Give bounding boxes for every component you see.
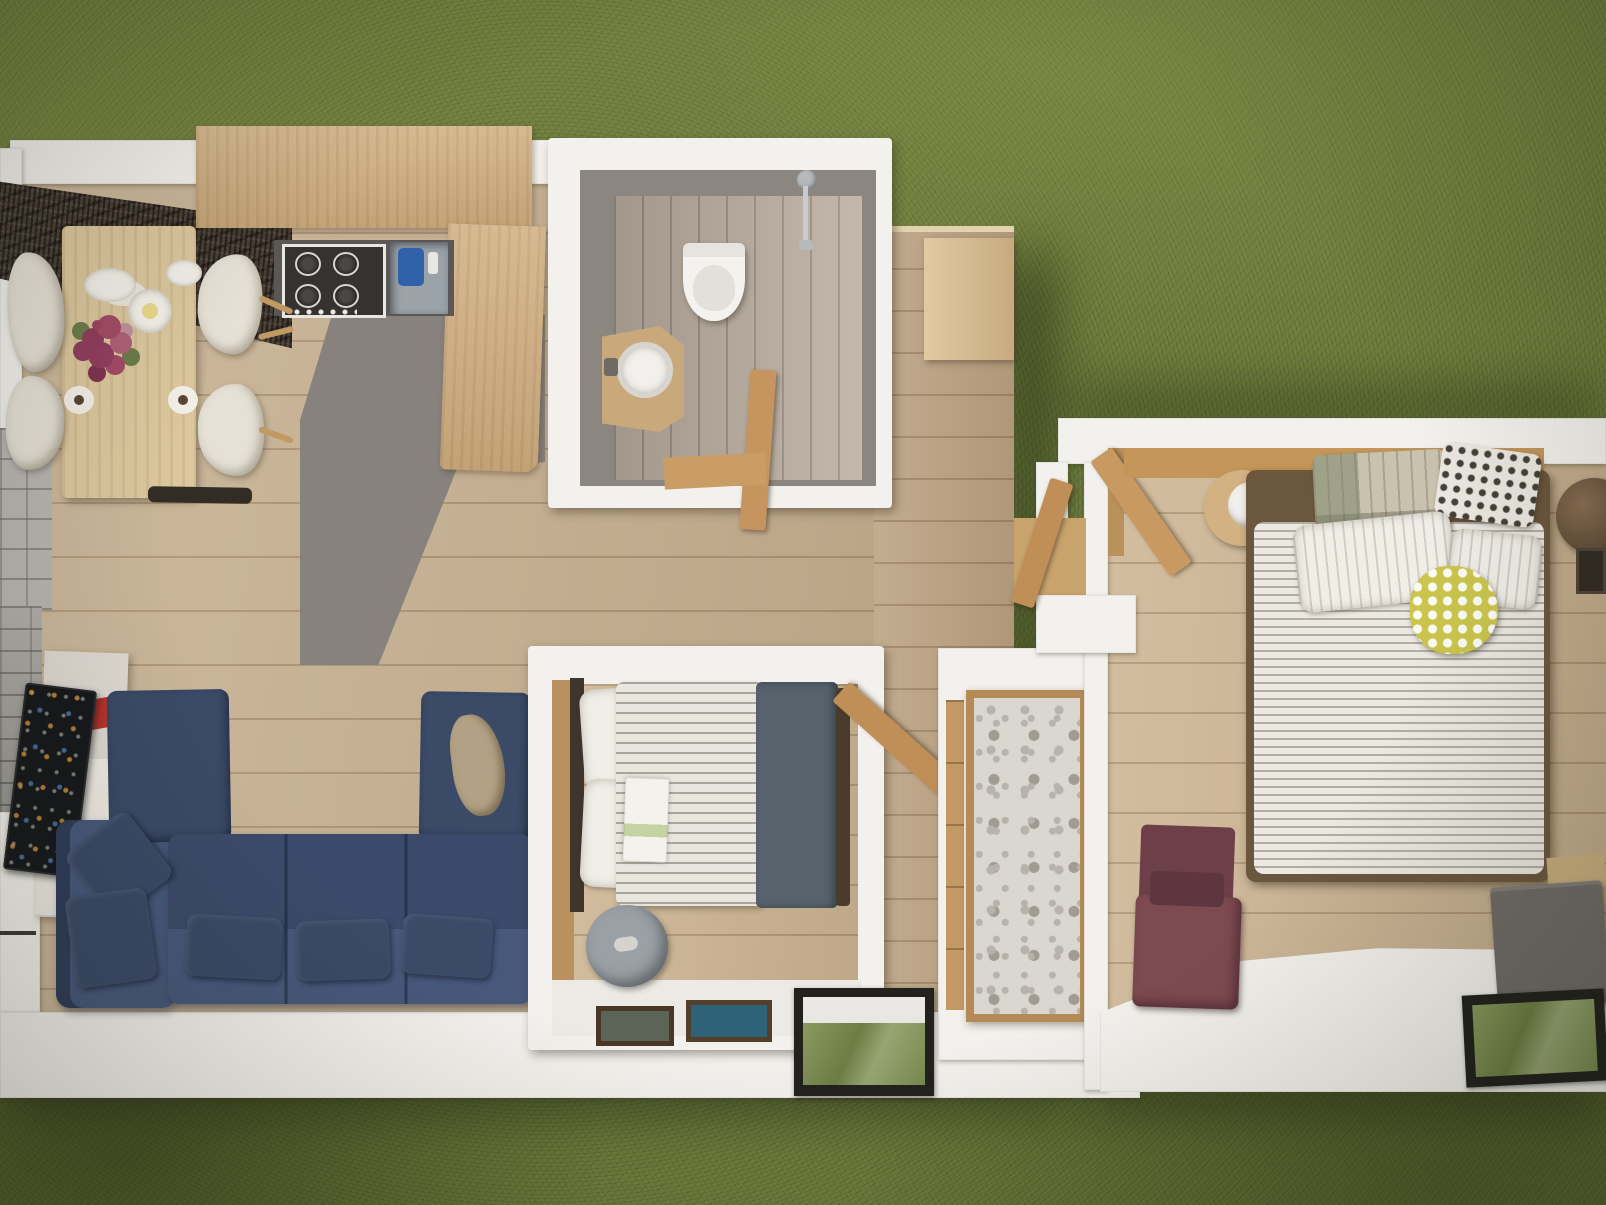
floor-plan-scene xyxy=(0,0,1606,1205)
yellow-round-pillow xyxy=(1410,566,1498,654)
floor-window-glass xyxy=(1472,999,1598,1077)
polka-dot-pillow xyxy=(1433,441,1542,528)
maroon-armchair-fold xyxy=(1149,871,1224,908)
maroon-armchair-seat xyxy=(1132,894,1242,1010)
entry-stub-lower xyxy=(1036,595,1136,653)
bedroom-unit xyxy=(0,0,1606,1205)
floor-window xyxy=(1462,988,1606,1087)
master-wall-left xyxy=(1084,462,1108,1090)
photo-frame xyxy=(1576,548,1606,594)
